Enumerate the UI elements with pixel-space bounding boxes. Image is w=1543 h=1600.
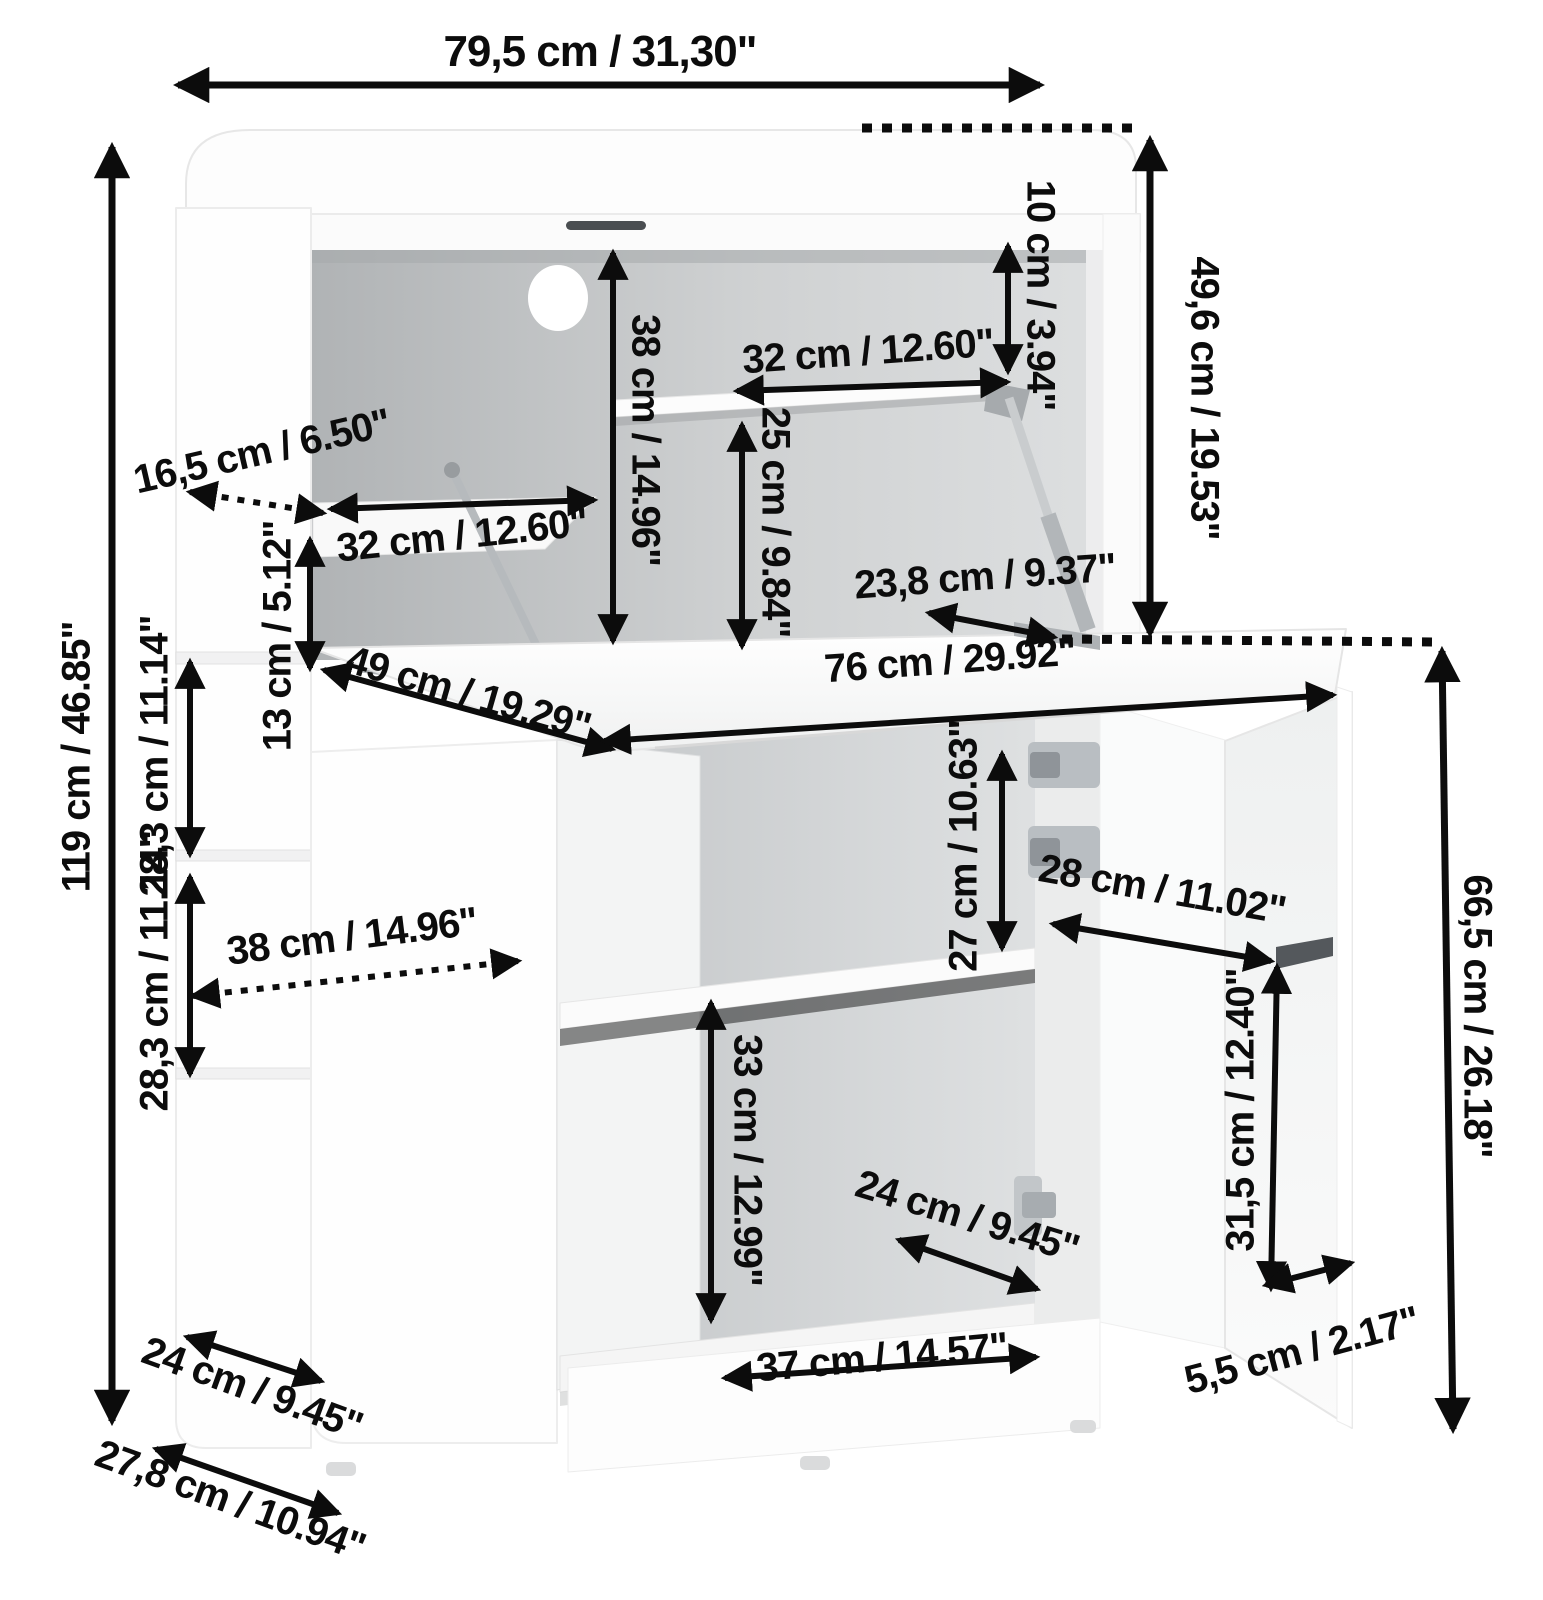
dim-label-door-inner-height: 31,5 cm / 12.40": [1219, 968, 1264, 1251]
side-shelf-divider-3: [176, 1068, 311, 1079]
dim-label-hutch-height: 49,6 cm / 19.53": [1182, 256, 1227, 539]
cable-slot: [566, 221, 646, 230]
left-door-closed: [311, 740, 557, 1443]
hutch-top-surface: [186, 214, 1140, 252]
foot-left: [326, 1462, 356, 1476]
hinge-top: [1028, 742, 1100, 788]
left-side-panel: [176, 208, 311, 1448]
hutch-back-panel: [186, 130, 1136, 218]
cable-hole: [528, 265, 588, 331]
dim-label-under-shelf-height: 25 cm / 9.84": [753, 407, 798, 638]
dim-label-shelf-to-desk: 13 cm / 5.12": [256, 521, 301, 752]
dim-arrow-front-height: [1442, 651, 1453, 1429]
dim-label-front-height: 66,5 cm / 26.18": [1455, 874, 1500, 1157]
strut-left-top-bracket: [444, 462, 460, 478]
dim-label-side-bottom-section: 28,3 cm / 11.14": [133, 831, 178, 1112]
foot-middle: [800, 1456, 830, 1470]
side-shelf-divider-2: [176, 850, 311, 861]
dim-label-hutch-inner-height: 38 cm / 14.96": [623, 314, 668, 566]
dim-label-top-gap: 10 cm / 3.94": [1018, 180, 1063, 411]
dim-label-total-width: 79,5 cm / 31,30": [443, 27, 756, 77]
dim-label-compartment-height: 27 cm / 10.63": [942, 720, 987, 972]
dim-label-total-height: 119 cm / 46.85": [55, 622, 100, 893]
dim-label-lower-compartment-height: 33 cm / 12.99": [725, 1034, 770, 1286]
hutch-right-inner-wall: [1086, 250, 1103, 660]
hutch-right-panel: [1103, 214, 1140, 660]
dimension-diagram: 79,5 cm / 31,30" 49,6 cm / 19.53" 10 cm …: [0, 0, 1543, 1600]
foot-right: [1070, 1420, 1096, 1433]
hutch-interior-top-shadow: [311, 250, 1103, 263]
cabinet-left-wall: [557, 740, 700, 1390]
cabinet-right-side: [1100, 703, 1225, 1348]
